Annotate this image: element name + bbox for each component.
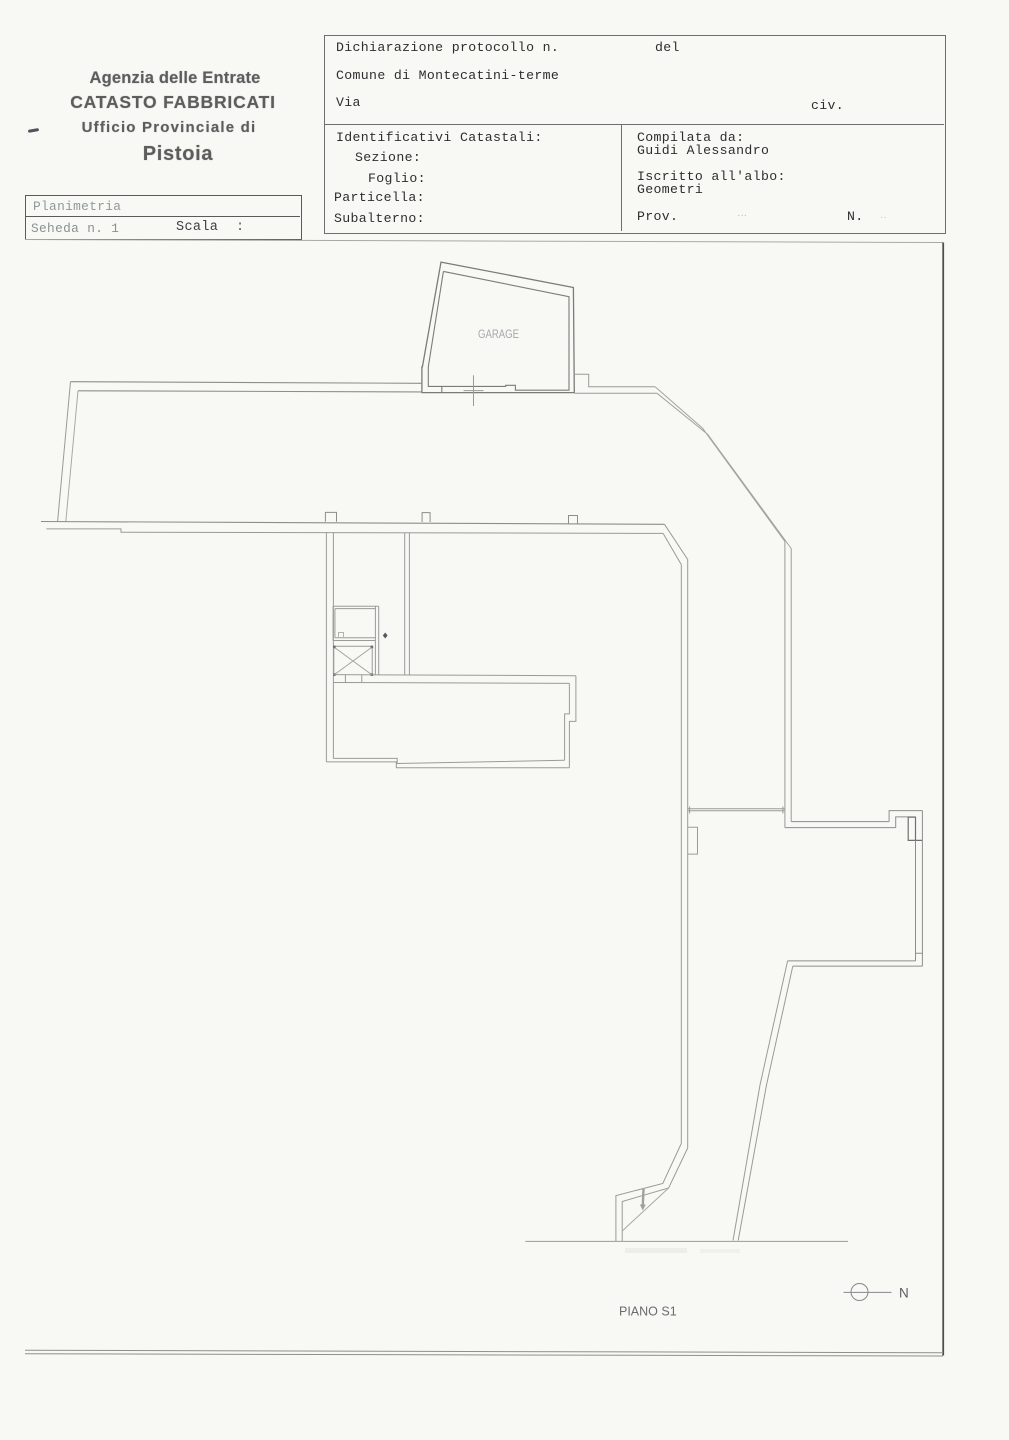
svg-text:PIANO S1: PIANO S1: [619, 1305, 677, 1319]
svg-text:N: N: [899, 1286, 909, 1301]
svg-text:GARAGE: GARAGE: [478, 329, 519, 341]
